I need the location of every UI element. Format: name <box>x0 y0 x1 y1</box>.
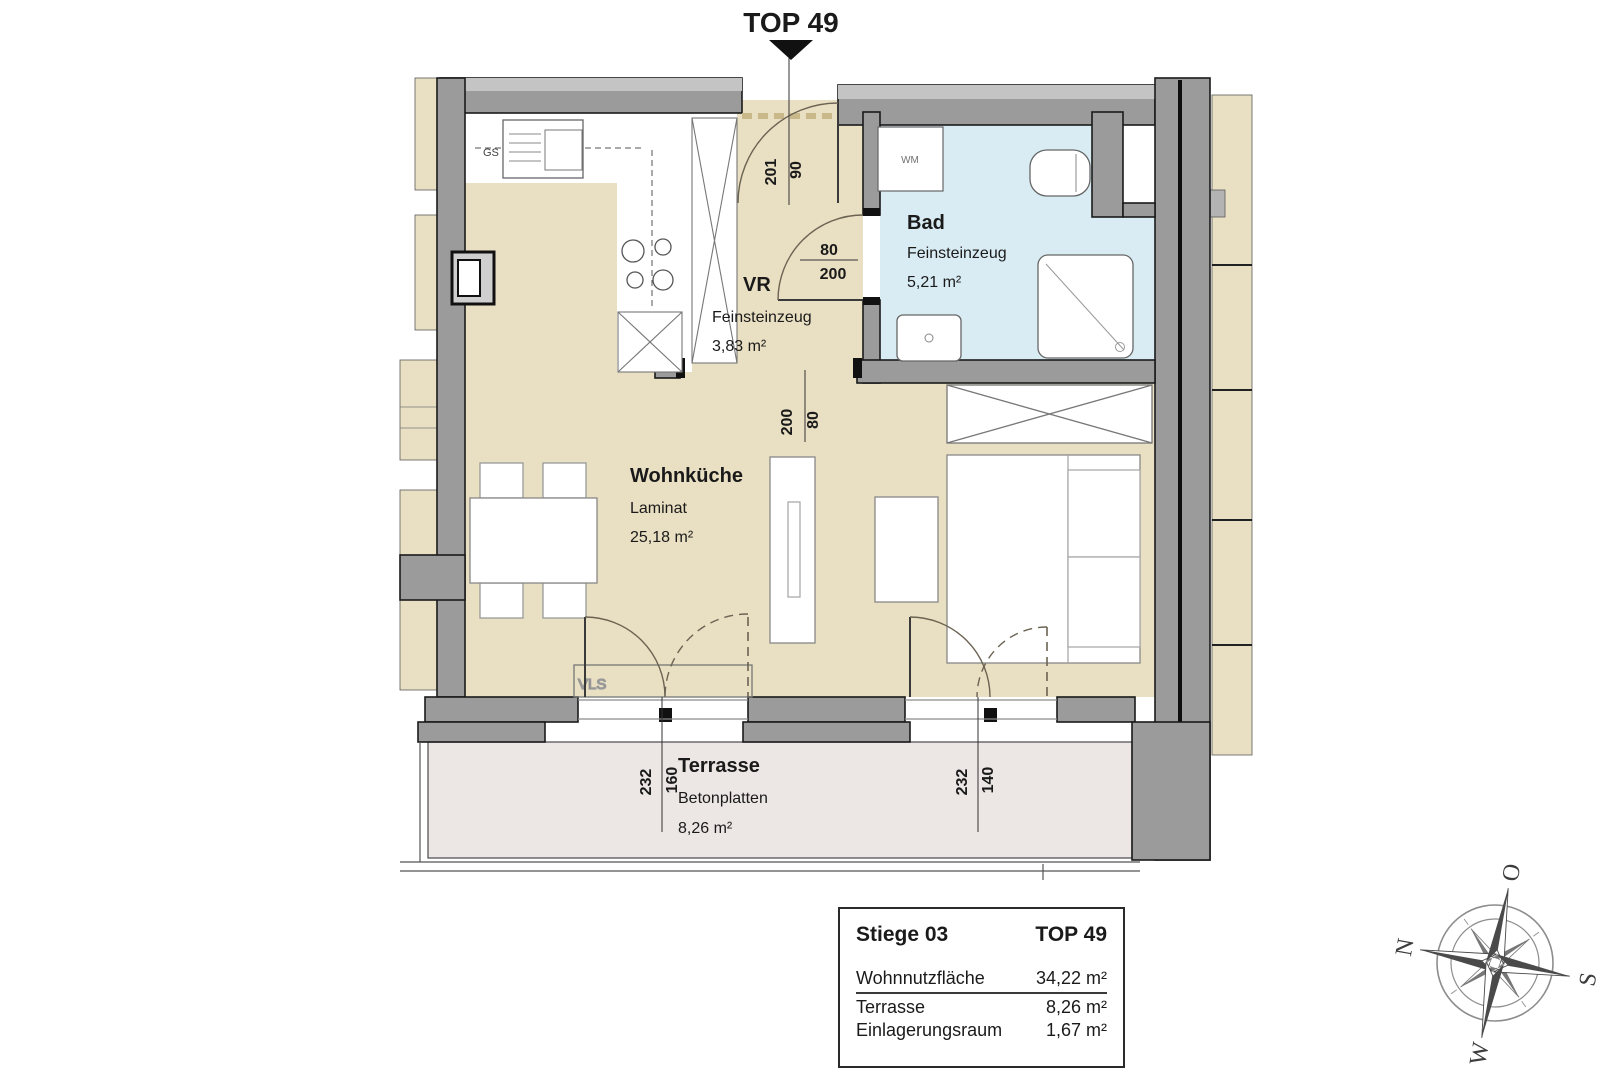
terrace-floor <box>428 742 1132 858</box>
room-bad-area: 5,21 m² <box>907 274 962 291</box>
room-bad-name: Bad <box>907 212 945 234</box>
room-vr-floor: Feinsteinzeug <box>712 309 812 326</box>
sink-unit-icon <box>503 120 583 178</box>
info-row-value: 1,67 m² <box>1046 1019 1107 1042</box>
room-wohnkueche-name: Wohnküche <box>630 465 743 487</box>
info-row-label: Wohnnutzfläche <box>856 967 985 990</box>
wardrobe-bedroom-icon <box>947 385 1152 443</box>
dining-table <box>470 498 597 583</box>
unit-info-box: Stiege 03 TOP 49 Wohnnutzfläche 34,22 m²… <box>838 907 1125 1068</box>
info-row-value: 8,26 m² <box>1046 996 1107 1019</box>
dishwasher-label: GS <box>483 147 499 159</box>
washing-machine-label: WM <box>901 155 919 166</box>
room-wohnkueche-floor: Laminat <box>630 500 687 517</box>
dim-vr-opening-width: 80 <box>805 411 822 429</box>
washbasin-icon <box>897 315 961 361</box>
side-table <box>875 497 938 602</box>
dim-terrace-depth-left: 232 <box>638 769 655 796</box>
room-terrasse-area: 8,26 m² <box>678 820 733 837</box>
entrance-arrow-icon <box>769 40 813 60</box>
bed <box>947 455 1140 663</box>
floorplan-page: GS WM <box>0 0 1620 1080</box>
info-row: Terrasse 8,26 m² <box>856 996 1107 1019</box>
unit-marker: TOP 49 <box>743 7 838 60</box>
floorplan-canvas: GS WM <box>0 0 1620 1080</box>
info-top: TOP 49 <box>1035 923 1107 947</box>
dim-terrace-depth-right: 232 <box>954 769 971 796</box>
shower-icon <box>1038 255 1133 358</box>
vls-label: VLS <box>578 676 606 693</box>
room-terrasse-floor: Betonplatten <box>678 790 768 807</box>
toilet-icon <box>1030 150 1090 196</box>
compass-rose-icon: N O S W <box>1375 846 1619 1080</box>
compass-west-label: W <box>1465 1040 1495 1067</box>
room-vr-area: 3,83 m² <box>712 338 767 355</box>
chair <box>480 583 523 618</box>
stove-icon <box>622 239 673 290</box>
cupboard-icon <box>618 312 682 372</box>
room-vr-name: VR <box>743 274 771 296</box>
wall-shaft <box>452 252 494 304</box>
compass-north-label: N <box>1391 936 1420 958</box>
dim-terrace-door-right: 140 <box>980 767 997 794</box>
room-bad-floor: Feinsteinzeug <box>907 245 1007 262</box>
wardrobe-vr-icon <box>692 118 737 363</box>
chair <box>543 583 586 618</box>
unit-label: TOP 49 <box>743 7 838 38</box>
dim-entrance-height: 201 <box>763 159 780 186</box>
dim-bath-door-width: 80 <box>820 242 838 259</box>
chair <box>543 463 586 498</box>
room-terrasse-name: Terrasse <box>678 755 760 777</box>
compass-main-points <box>1407 875 1583 1051</box>
compass-east-label: O <box>1498 862 1527 884</box>
dim-bath-door-height: 200 <box>820 266 847 283</box>
compass-south-label: S <box>1575 971 1603 989</box>
info-row-label: Terrasse <box>856 996 925 1019</box>
chair <box>480 463 523 498</box>
info-row: Wohnnutzfläche 34,22 m² <box>856 967 1107 994</box>
washing-machine-icon: WM <box>878 127 943 191</box>
dim-vr-opening-height: 200 <box>779 409 796 436</box>
info-stiege: Stiege 03 <box>856 923 948 947</box>
room-wohnkueche-area: 25,18 m² <box>630 529 694 546</box>
info-row-label: Einlagerungsraum <box>856 1019 1002 1042</box>
info-row: Einlagerungsraum 1,67 m² <box>856 1019 1107 1042</box>
dim-entrance-width: 90 <box>788 161 805 179</box>
info-row-value: 34,22 m² <box>1036 967 1107 990</box>
sideboard-slot <box>788 502 800 597</box>
